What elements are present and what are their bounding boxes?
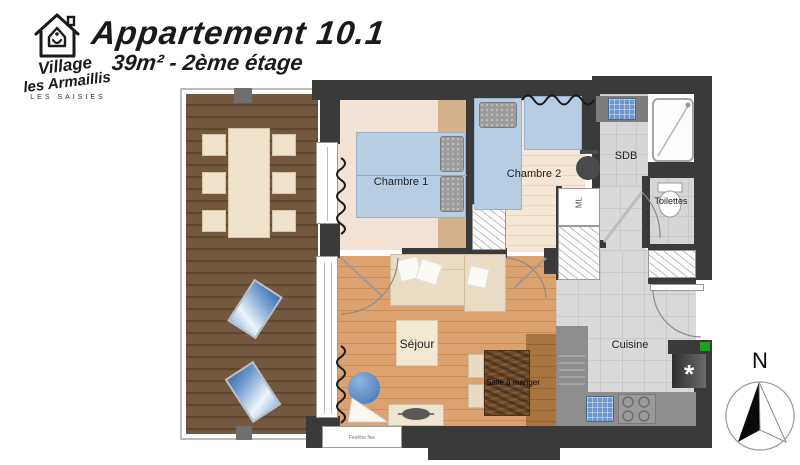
terrace-chair bbox=[272, 172, 296, 194]
window-chambre1 bbox=[316, 142, 338, 224]
cooktop bbox=[618, 394, 656, 424]
terrace-chair bbox=[202, 134, 226, 156]
toilettes-floor bbox=[648, 176, 694, 248]
label-salle-a-manger: Salle à manger bbox=[470, 378, 556, 387]
tv-stand bbox=[388, 404, 444, 426]
closet-hatch bbox=[648, 250, 696, 278]
wall bbox=[320, 222, 340, 258]
compass-circle bbox=[726, 382, 794, 450]
pillow bbox=[440, 136, 464, 172]
compass-north-label: N bbox=[752, 348, 768, 373]
kitchen-sink bbox=[586, 396, 614, 422]
label-chambre1: Chambre 1 bbox=[356, 176, 446, 188]
terrace-chair bbox=[202, 172, 226, 194]
terrace-chair bbox=[202, 210, 226, 232]
terrace-table bbox=[228, 128, 270, 238]
label-cuisine: Cuisine bbox=[594, 339, 666, 351]
page-title: Appartement 10.1 bbox=[90, 14, 425, 52]
wall bbox=[648, 162, 696, 178]
closet-hatch bbox=[558, 226, 600, 280]
terrace-chair bbox=[272, 134, 296, 156]
terrace-post bbox=[234, 88, 252, 103]
entrance-door-leaf bbox=[650, 284, 704, 291]
compass-needle-dark bbox=[738, 382, 760, 442]
pouf bbox=[348, 372, 380, 404]
sdb-sink bbox=[608, 98, 636, 120]
dining-chair bbox=[468, 354, 484, 378]
label-ml: ML bbox=[575, 190, 584, 216]
terrace-chair bbox=[272, 210, 296, 232]
floor-plan-page: Village les Armaillis LES SAISIES Appart… bbox=[0, 0, 800, 465]
shower bbox=[652, 98, 694, 162]
window-sejour bbox=[316, 256, 338, 418]
window-note-label: Fenêtre fixe bbox=[323, 435, 401, 441]
green-marker bbox=[700, 342, 710, 351]
label-toilettes: Toilettes bbox=[645, 196, 697, 206]
storage-marker-box: * bbox=[672, 354, 706, 388]
chambre2-second-bed bbox=[524, 96, 582, 150]
pillow bbox=[479, 102, 517, 128]
compass: N bbox=[726, 348, 794, 450]
closet-hatch bbox=[472, 204, 506, 250]
wall bbox=[320, 90, 340, 144]
dining-chair bbox=[468, 384, 484, 408]
wall bbox=[428, 446, 560, 460]
label-sejour: Séjour bbox=[384, 337, 450, 351]
window-note-box: Fenêtre fixe bbox=[322, 426, 402, 448]
sofa-pillow bbox=[466, 265, 490, 289]
logo-text: Village les Armaillis bbox=[4, 49, 127, 98]
label-sdb: SDB bbox=[606, 150, 646, 162]
label-chambre2: Chambre 2 bbox=[488, 168, 580, 180]
wall bbox=[642, 176, 650, 248]
terrace-post bbox=[236, 426, 252, 440]
wall bbox=[694, 90, 712, 280]
compass-needle-light bbox=[759, 382, 786, 442]
kitchen-counter-left bbox=[556, 326, 588, 394]
page-subtitle: 39m² - 2ème étage bbox=[110, 50, 393, 76]
logo-location: LES SAISIES bbox=[20, 94, 116, 101]
